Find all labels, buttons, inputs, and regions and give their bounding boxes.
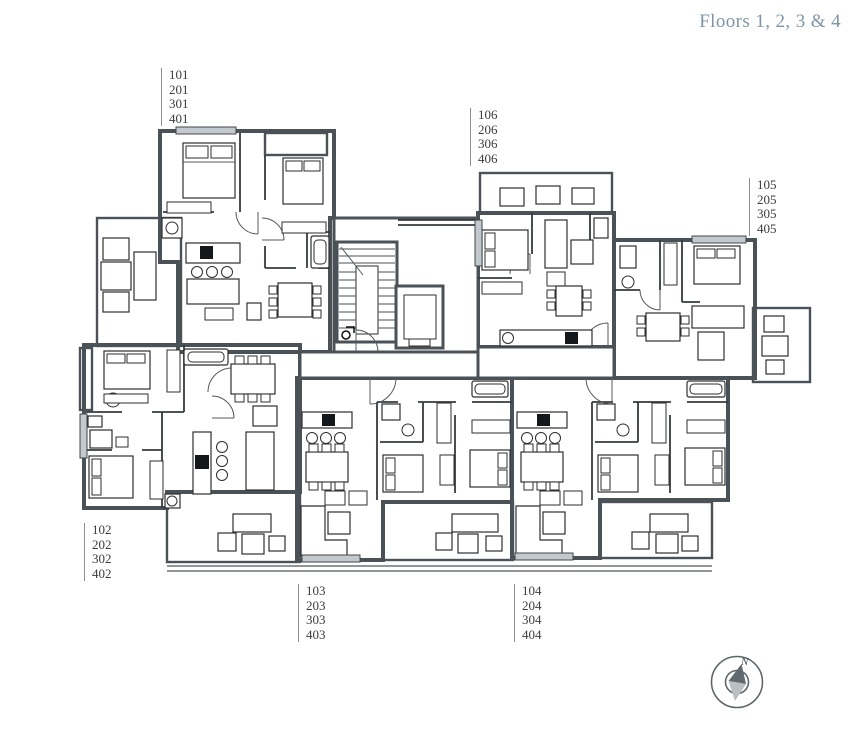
balcony-106-top — [480, 173, 612, 213]
unit-number: 301 — [169, 97, 189, 112]
unit-number: 302 — [92, 552, 112, 567]
floorplan-drawing — [0, 0, 850, 739]
terrace-104 — [600, 502, 712, 558]
unit-number: 105 — [757, 178, 777, 193]
unit-label-104: 104 204 304 404 — [514, 584, 542, 642]
unit-label-103: 103 203 303 403 — [298, 584, 326, 642]
unit-number: 403 — [306, 628, 326, 643]
terrace-102 — [167, 492, 300, 562]
unit-number: 101 — [169, 68, 189, 83]
furniture-102 — [88, 349, 277, 508]
unit-number: 306 — [478, 137, 498, 152]
floorplan-page: Floors 1, 2, 3 & 4 101 201 301 401 106 2… — [0, 0, 850, 739]
unit-number: 203 — [306, 599, 326, 614]
unit-number: 204 — [522, 599, 542, 614]
unit-number: 102 — [92, 523, 112, 538]
unit-label-102: 102 202 302 402 — [84, 523, 112, 581]
unit-number: 401 — [169, 112, 189, 127]
stair-core — [334, 218, 478, 352]
unit-number: 206 — [478, 123, 498, 138]
unit-number: 106 — [478, 108, 498, 123]
unit-label-105: 105 205 305 405 — [749, 178, 777, 236]
unit-number: 202 — [92, 538, 112, 553]
unit-label-106: 106 206 306 406 — [470, 108, 498, 166]
unit-number: 205 — [757, 193, 777, 208]
ground-lines — [167, 566, 712, 571]
unit-number: 303 — [306, 613, 326, 628]
unit-number: 104 — [522, 584, 542, 599]
unit-number: 103 — [306, 584, 326, 599]
compass-north-label: N — [741, 656, 748, 668]
furniture-101 — [162, 143, 329, 320]
elevator — [396, 286, 443, 348]
unit-number: 405 — [757, 222, 777, 237]
unit-number: 402 — [92, 567, 112, 582]
entrance-hall-east — [478, 347, 614, 378]
unit-number: 304 — [522, 613, 542, 628]
compass-icon — [708, 652, 768, 712]
unit-number: 404 — [522, 628, 542, 643]
unit-number: 305 — [757, 207, 777, 222]
balcony-105-right — [753, 308, 810, 382]
entrance-hall-west — [300, 352, 478, 378]
terrace-103 — [383, 502, 513, 560]
unit-number: 406 — [478, 152, 498, 167]
balcony-101-top — [265, 133, 327, 155]
unit-label-101: 101 201 301 401 — [161, 68, 189, 126]
unit-number: 201 — [169, 83, 189, 98]
page-title: Floors 1, 2, 3 & 4 — [699, 11, 841, 33]
furniture-104 — [516, 381, 725, 556]
